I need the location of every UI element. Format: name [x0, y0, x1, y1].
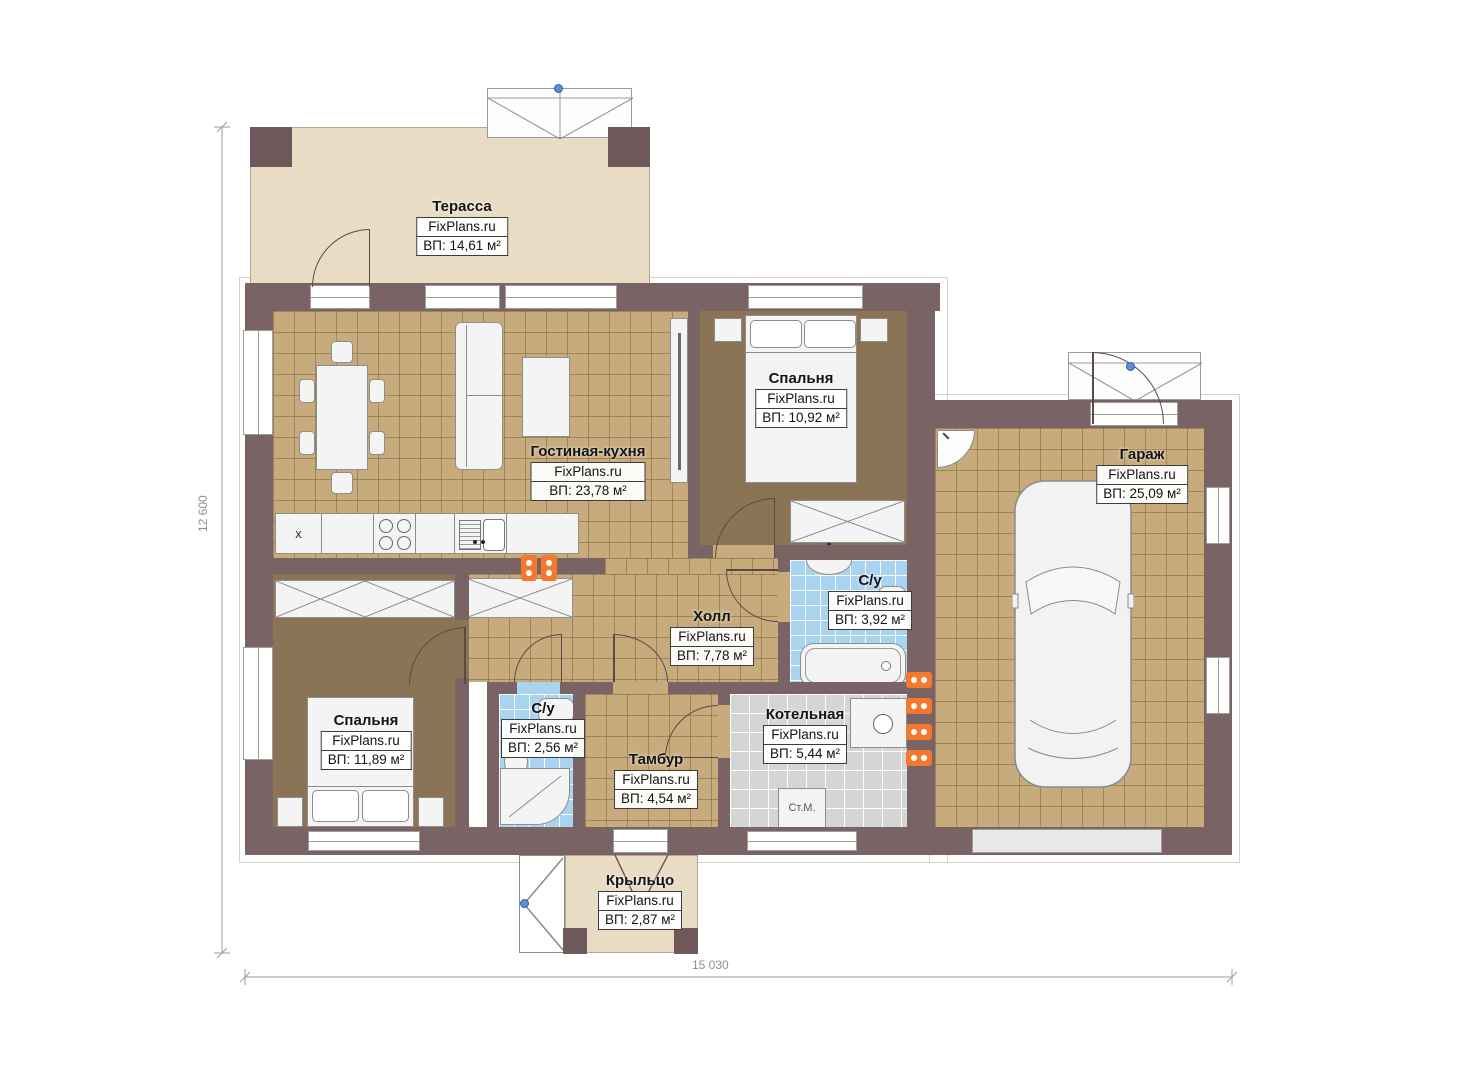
radiator	[906, 698, 932, 714]
room-name: С/у	[828, 572, 912, 589]
watermark: FixPlans.ru	[321, 731, 412, 751]
room-area: ВП: 7,78 м²	[670, 647, 754, 666]
room-area: ВП: 5,44 м²	[763, 745, 847, 764]
room-name: Спальня	[755, 370, 847, 387]
radiator	[521, 555, 537, 581]
radiator	[906, 750, 932, 766]
room-area: ВП: 3,92 м²	[828, 611, 912, 630]
room-label-garage: Гараж FixPlans.ru ВП: 25,09 м²	[1096, 446, 1188, 504]
room-label-porch: Крыльцо FixPlans.ru ВП: 2,87 м²	[598, 872, 682, 930]
room-area: ВП: 2,56 м²	[501, 739, 585, 758]
watermark: FixPlans.ru	[763, 725, 847, 745]
watermark: FixPlans.ru	[755, 389, 847, 409]
room-area: ВП: 23,78 м²	[531, 482, 646, 501]
radiator	[906, 672, 932, 688]
room-label-bedroom-1: Спальня FixPlans.ru ВП: 10,92 м²	[755, 370, 847, 428]
room-name: С/у	[501, 700, 585, 717]
room-label-bedroom-2: Спальня FixPlans.ru ВП: 11,89 м²	[321, 712, 412, 770]
room-label-boiler: Котельная FixPlans.ru ВП: 5,44 м²	[763, 706, 847, 764]
room-area: ВП: 14,61 м²	[416, 237, 508, 256]
room-name: Терасса	[416, 198, 508, 215]
room-name: Холл	[670, 608, 754, 625]
watermark: FixPlans.ru	[614, 770, 698, 790]
entrance-door-swing	[0, 0, 1474, 1080]
room-label-bathroom-2: С/у FixPlans.ru ВП: 2,56 м²	[501, 700, 585, 758]
room-label-bathroom-1: С/у FixPlans.ru ВП: 3,92 м²	[828, 572, 912, 630]
floor-plan: 12 600 15 030	[0, 0, 1474, 1080]
radiator	[541, 555, 557, 581]
room-name: Котельная	[763, 706, 847, 723]
room-name: Тамбур	[614, 751, 698, 768]
room-name: Гостиная-кухня	[531, 443, 646, 460]
room-area: ВП: 4,54 м²	[614, 790, 698, 809]
room-label-living-kitchen: Гостиная-кухня FixPlans.ru ВП: 23,78 м²	[531, 443, 646, 501]
canopy-marker	[1126, 362, 1135, 371]
watermark: FixPlans.ru	[828, 591, 912, 611]
watermark: FixPlans.ru	[598, 891, 682, 911]
room-name: Гараж	[1096, 446, 1188, 463]
room-label-hall: Холл FixPlans.ru ВП: 7,78 м²	[670, 608, 754, 666]
room-label-vestibule: Тамбур FixPlans.ru ВП: 4,54 м²	[614, 751, 698, 809]
room-area: ВП: 25,09 м²	[1096, 485, 1188, 504]
watermark: FixPlans.ru	[1096, 465, 1188, 485]
watermark: FixPlans.ru	[501, 719, 585, 739]
watermark: FixPlans.ru	[531, 462, 646, 482]
room-area: ВП: 10,92 м²	[755, 409, 847, 428]
porch-marker	[520, 899, 529, 908]
room-area: ВП: 11,89 м²	[321, 751, 412, 770]
room-label-terrace: Терасса FixPlans.ru ВП: 14,61 м²	[416, 198, 508, 256]
watermark: FixPlans.ru	[416, 217, 508, 237]
room-area: ВП: 2,87 м²	[598, 911, 682, 930]
room-name: Спальня	[321, 712, 412, 729]
canopy-marker	[554, 84, 563, 93]
watermark: FixPlans.ru	[670, 627, 754, 647]
room-name: Крыльцо	[598, 872, 682, 889]
radiator	[906, 724, 932, 740]
